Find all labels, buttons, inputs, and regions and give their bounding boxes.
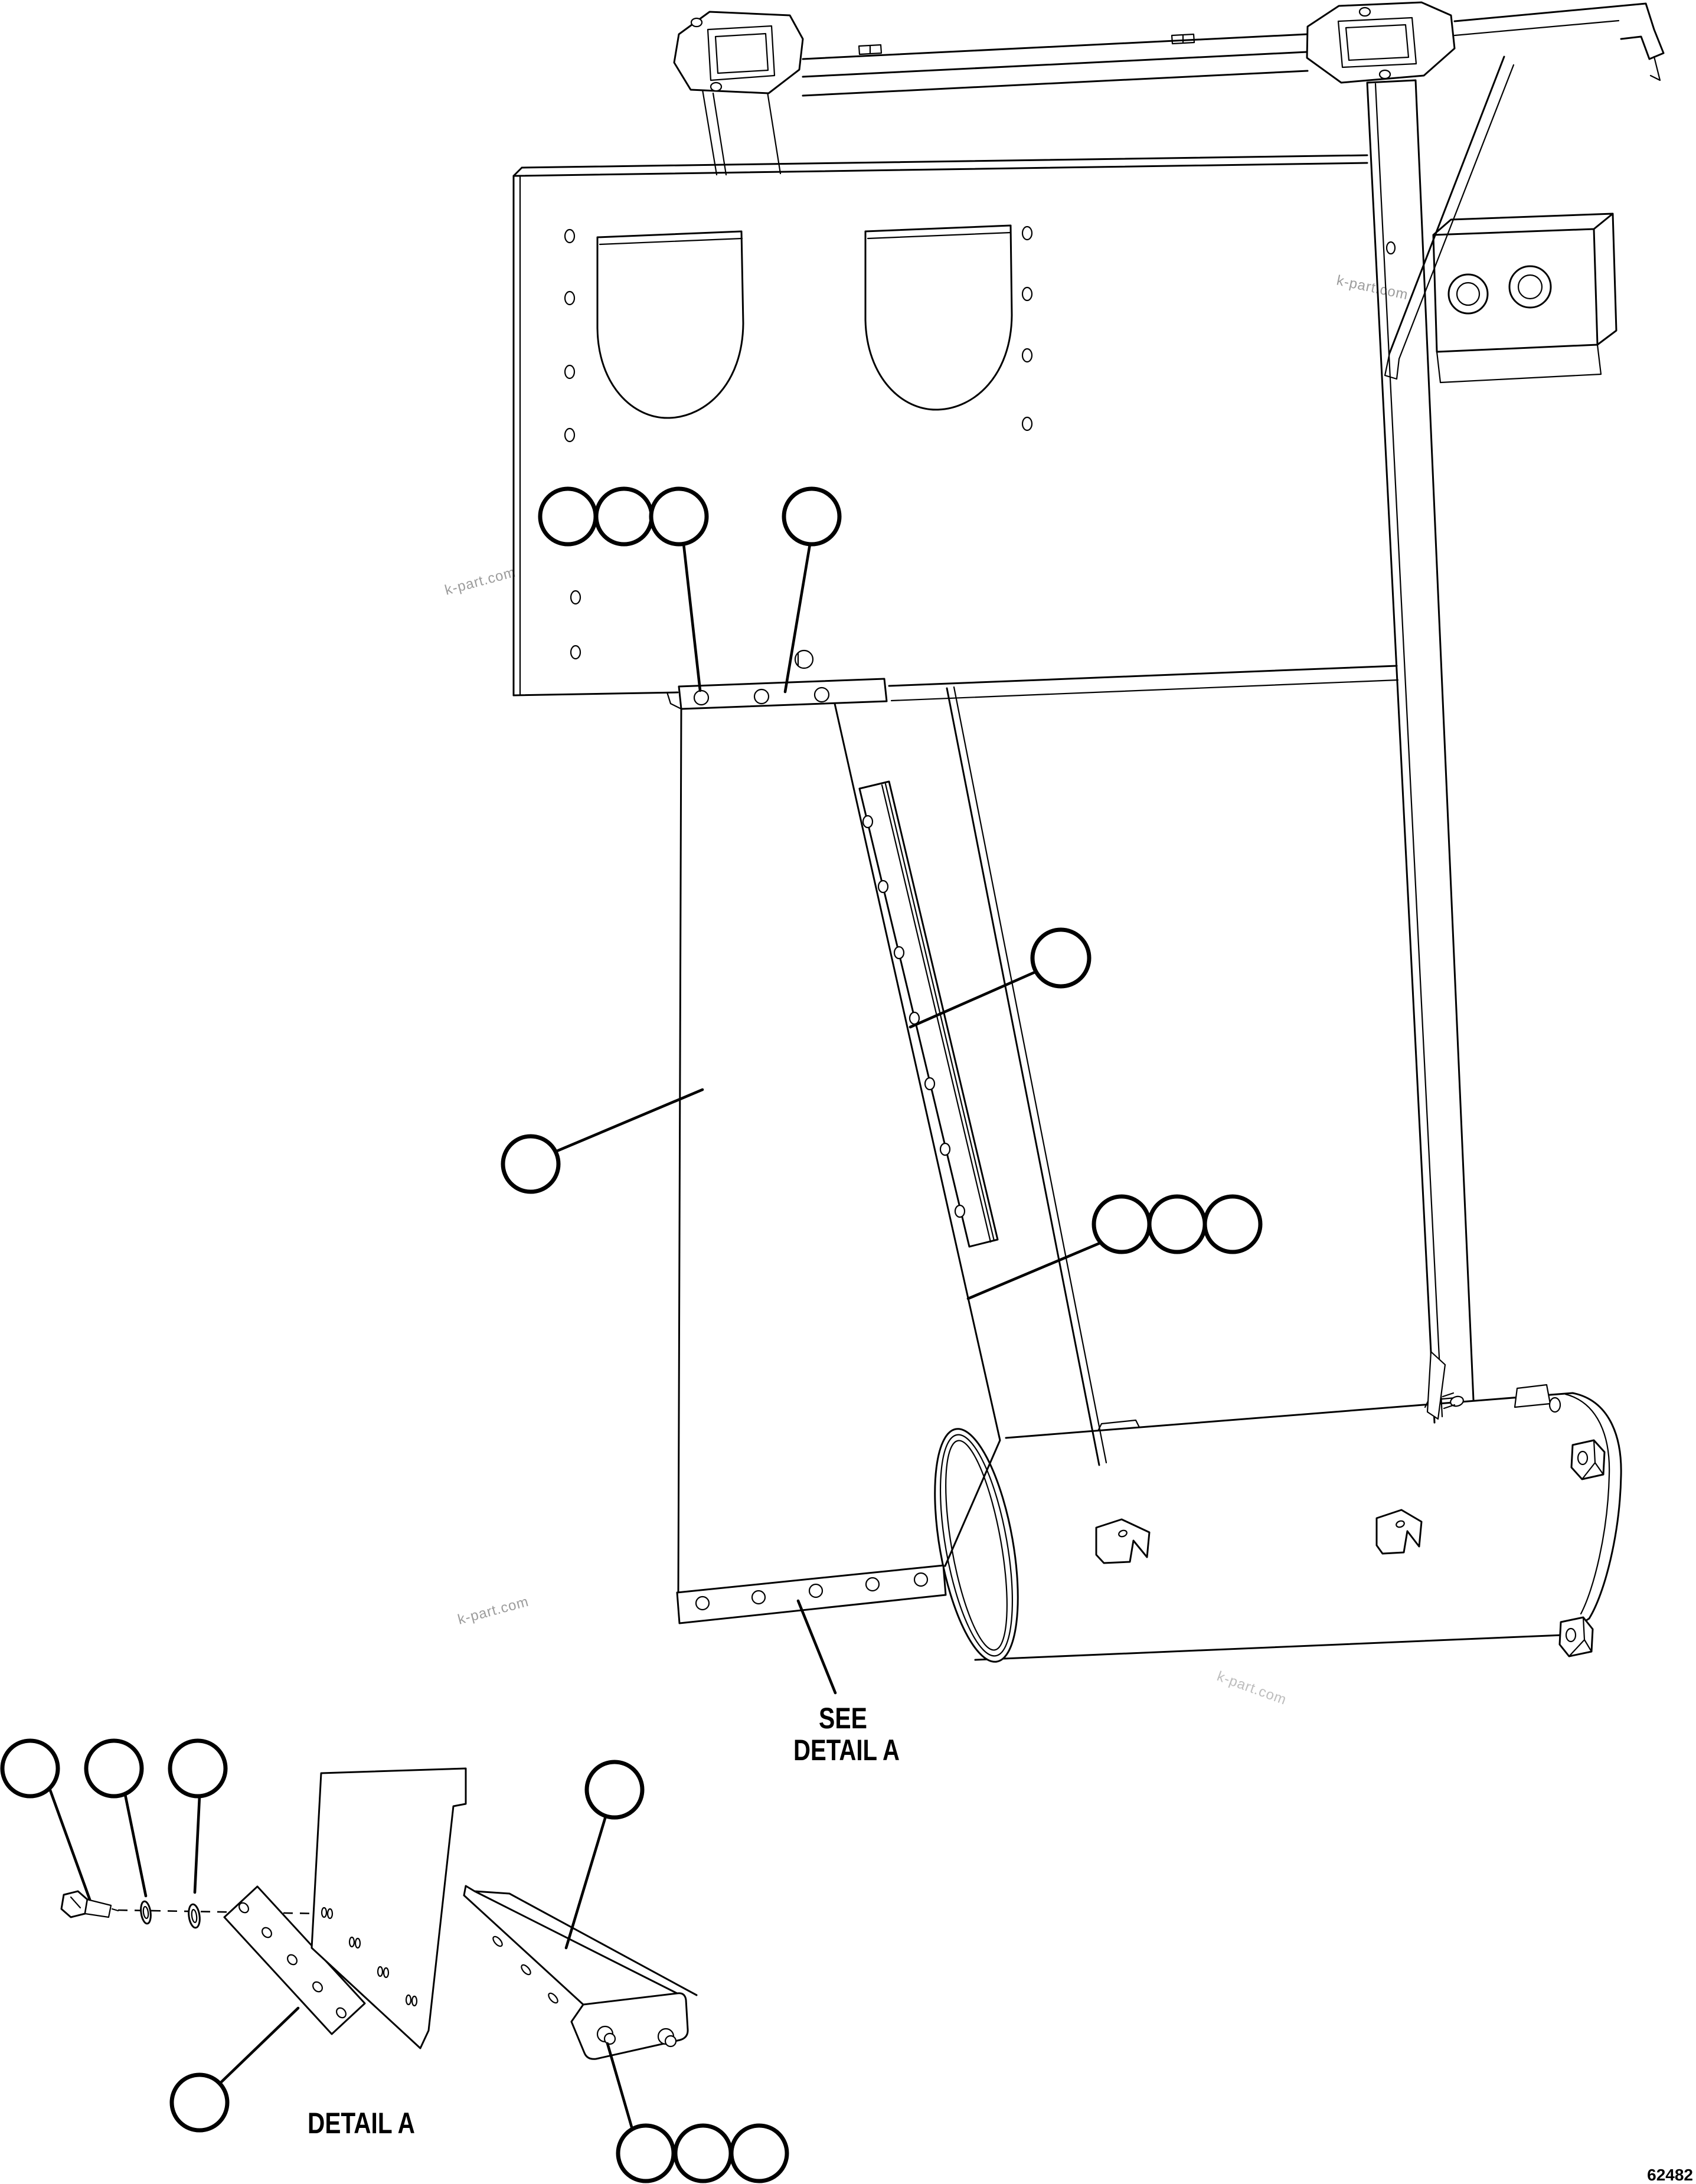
watermark-text: k-part.com: [1215, 1668, 1289, 1708]
drum-top-clip: [1515, 1385, 1550, 1407]
callout-balloon[interactable]: [2, 1741, 58, 1796]
hinge-bolt-hole: [694, 691, 708, 705]
ring-right-inner: [1518, 275, 1542, 299]
callout-balloon[interactable]: [618, 2126, 674, 2181]
callout-balloon[interactable]: [675, 2126, 731, 2181]
callout-balloon[interactable]: [596, 489, 652, 544]
drum-top-clip-peg: [1550, 1398, 1560, 1412]
detail-a-caption: DETAIL A: [308, 2107, 415, 2140]
callout-balloon[interactable]: [587, 1762, 642, 1817]
panel-cutout-right: [865, 225, 1012, 410]
watermark-text: k-part.com: [443, 564, 518, 599]
washer-flat: [139, 1901, 152, 1924]
callout-balloon[interactable]: [784, 489, 839, 544]
ring-left-inner: [1457, 283, 1479, 305]
leader-line: [607, 2044, 632, 2129]
watermark-text: k-part.com: [456, 1594, 531, 1628]
beam-clip-left: [859, 45, 881, 54]
see-detail-leader: [798, 1601, 835, 1693]
callout-balloon[interactable]: [1094, 1196, 1149, 1252]
callout-balloon[interactable]: [1032, 930, 1089, 986]
callout-balloon[interactable]: [1205, 1196, 1260, 1252]
left-pad-support: [702, 90, 780, 175]
exploded-parts-drawing: k-part.com k-part.com k-part.com k-part.…: [0, 0, 1696, 2184]
washer-lock: [187, 1904, 201, 1928]
bolt-head: [61, 1891, 87, 1917]
right-pad-hole: [1360, 8, 1370, 16]
text-labels: SEE DETAIL A DETAIL A 62482: [308, 1601, 1693, 2184]
mount-pads: [674, 2, 1455, 93]
right-pad-hole: [1380, 70, 1390, 79]
leader-line: [195, 1796, 200, 1892]
right-arm-detail: [1455, 21, 1660, 80]
drum-lug-lower: [1560, 1617, 1593, 1656]
left-pad-hole: [711, 83, 721, 91]
see-detail-label-line2: DETAIL A: [793, 1734, 900, 1767]
beam-bottom-edge: [803, 71, 1308, 96]
clamp-bracket-flange: [571, 1993, 688, 2059]
callout-balloon[interactable]: [651, 489, 707, 544]
drum-lug-upper: [1571, 1440, 1604, 1479]
callout-balloon[interactable]: [170, 1741, 226, 1796]
hinge-bolt-hole: [815, 688, 829, 702]
parts-diagram-page: k-part.com k-part.com k-part.com k-part.…: [0, 0, 1696, 2184]
post-hole: [1387, 242, 1395, 254]
drawing-number: 62482: [1647, 2166, 1693, 2184]
flange-bolt-head: [665, 2036, 676, 2046]
callout-balloon[interactable]: [172, 2075, 227, 2130]
callout-balloon[interactable]: [1149, 1196, 1205, 1252]
bolt-shank: [85, 1899, 111, 1917]
leader-line: [50, 1789, 90, 1899]
see-detail-label-line1: SEE: [819, 1702, 867, 1735]
flange-bolt-head: [604, 2033, 615, 2044]
callout-balloon[interactable]: [731, 2126, 787, 2181]
hinge-bolt-hole: [754, 689, 769, 704]
beam-clip-right: [1172, 34, 1194, 44]
leader-line: [566, 1816, 606, 1948]
callout-balloon[interactable]: [540, 489, 596, 544]
right-arm: [1455, 4, 1664, 59]
left-pad-hole: [691, 18, 702, 27]
callout-balloon[interactable]: [86, 1741, 142, 1796]
panel-cutout-left: [597, 231, 743, 418]
callout-balloon[interactable]: [503, 1136, 558, 1192]
leader-line: [125, 1794, 146, 1896]
leader-line: [220, 2008, 298, 2084]
clamp-bracket-slots: [492, 1935, 560, 2005]
